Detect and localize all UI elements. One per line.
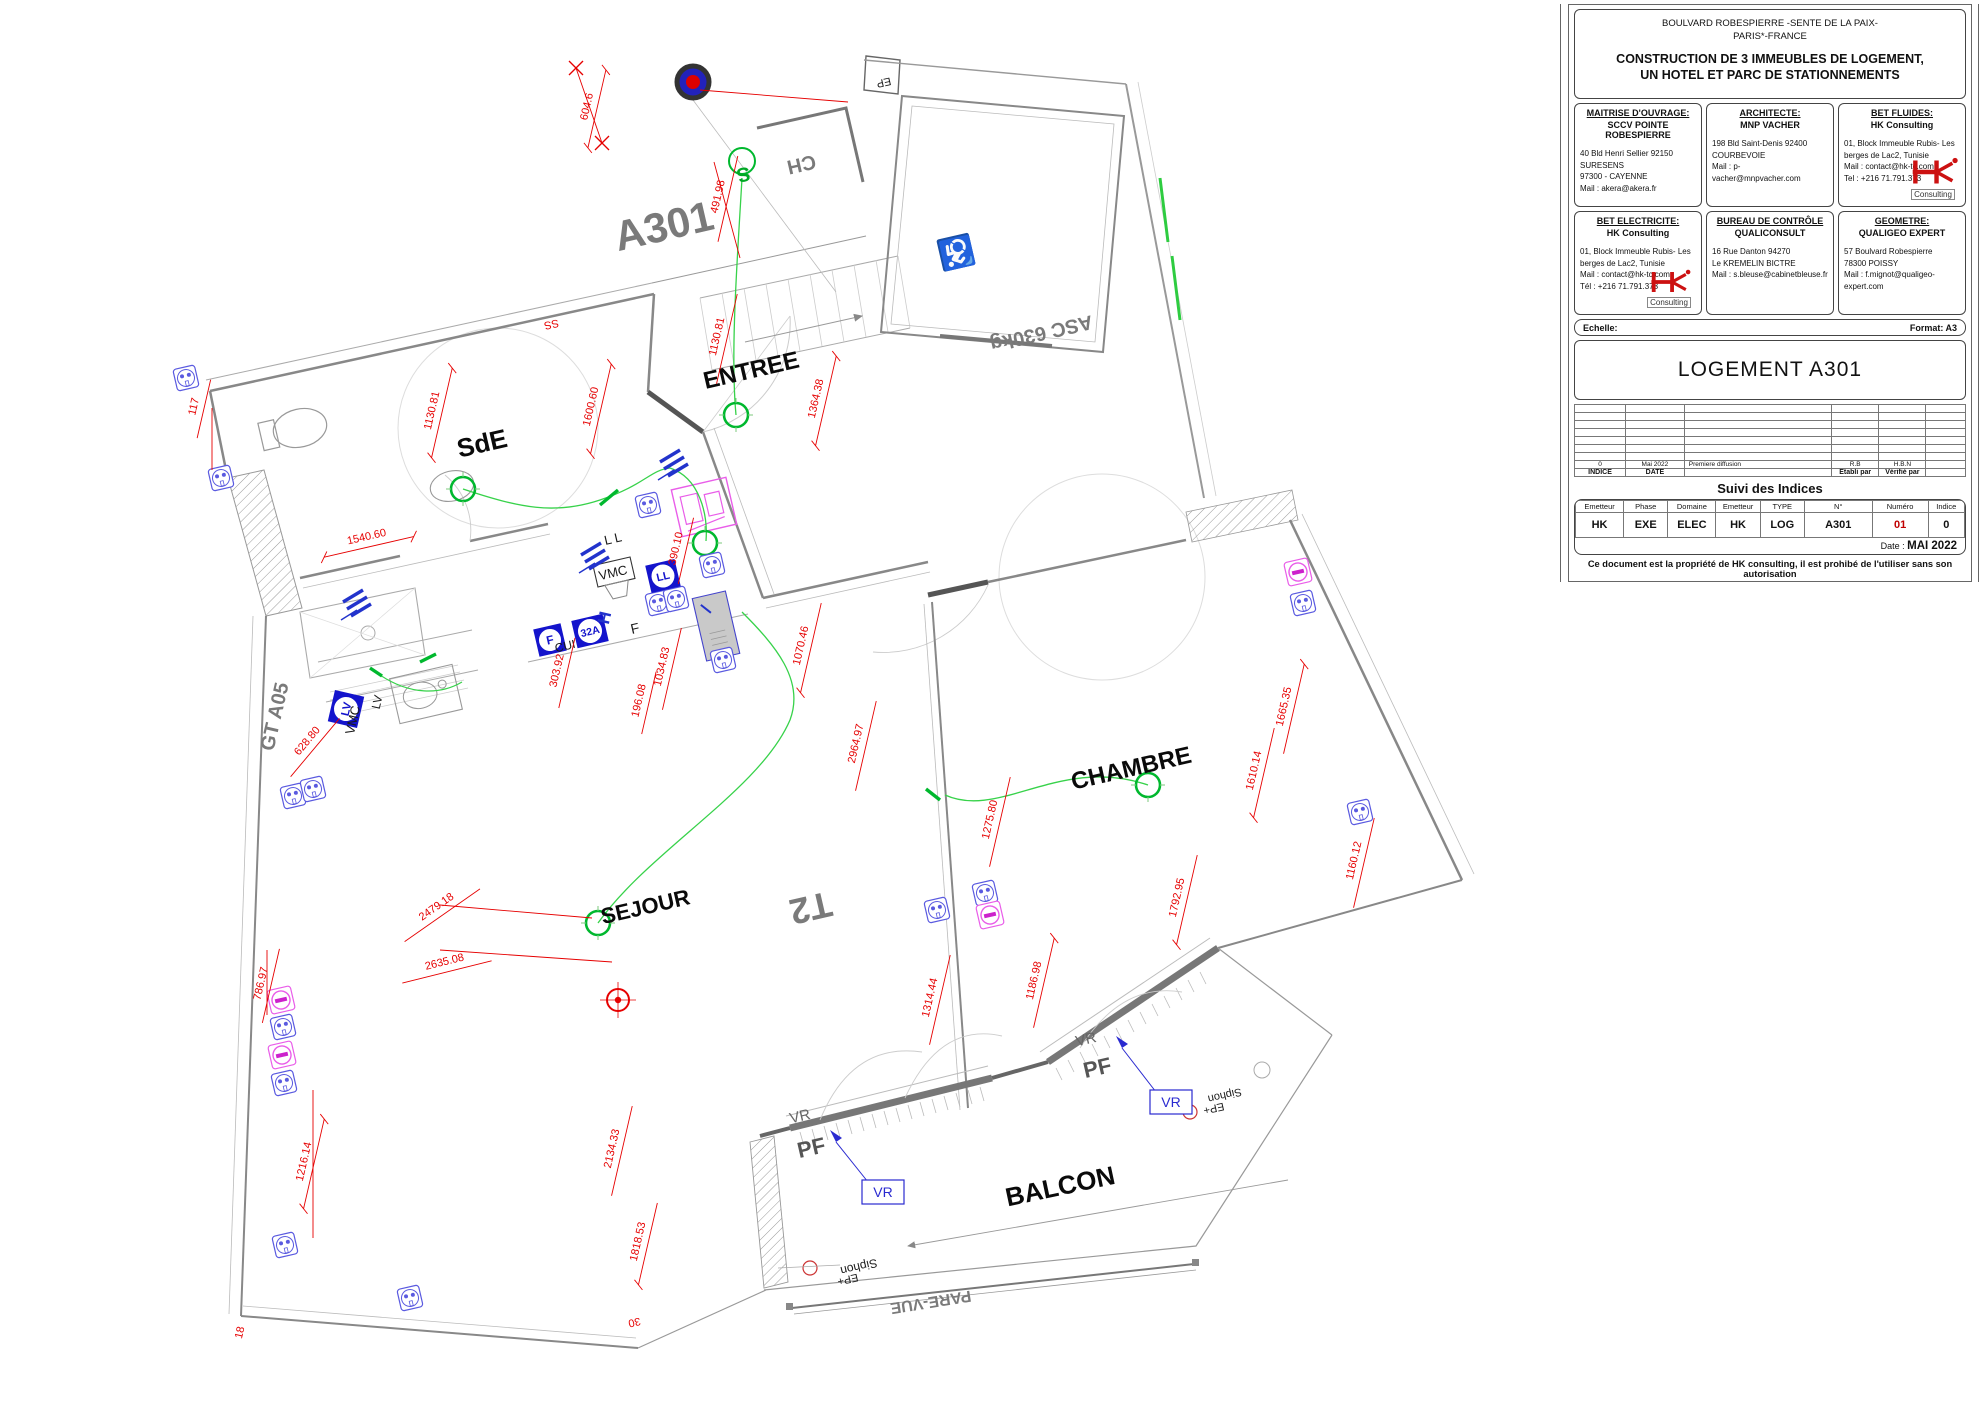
svg-text:491.98: 491.98 [709,179,728,214]
zone-label-t2: T2 [786,883,836,932]
label-siphon-2: Siphon [1207,1085,1243,1104]
revisions-table: 0 Mai 2022 Premiere diffusion R.B H.B.N … [1574,404,1966,477]
drawing-title: LOGEMENT A301 [1574,340,1966,400]
document-meta: Emetteur Phase Domaine Emetteur TYPE N° … [1574,499,1966,555]
svg-text:303.92: 303.92 [548,653,567,688]
svg-text:390.10: 390.10 [667,531,686,566]
label-ep-plus: EP+ [836,1271,859,1287]
stakeholder-bureau-controle: BUREAU DE CONTRÔLE QUALICONSULT 16 Rue D… [1706,211,1834,315]
label-pf: PF [795,1132,828,1163]
room-label-chambre: CHAMBRE [1069,742,1195,796]
project-address-2: PARIS*-FRANCE [1575,31,1965,44]
hk-consulting-logo: Consulting [1640,269,1698,308]
format-label: Format: A3 [1910,323,1957,333]
label-vr-gray-2: VR [1074,1029,1098,1050]
copyright-footer: Ce document est la propriété de HK consu… [1574,559,1966,579]
label-pf-2: PF [1081,1052,1114,1083]
hk-consulting-logo: Consulting [1904,157,1962,200]
stakeholder-bet-fluides: BET FLUIDES: HK Consulting 01, Block Imm… [1838,103,1966,207]
svg-text:VR: VR [1161,1094,1180,1110]
svg-text:117: 117 [186,397,202,417]
zone-label-asc: ASC 630kg [988,310,1095,355]
plan-texts: SdE ENTREE SEJOUR CHAMBRE BALCON A301 T2… [257,74,1243,1316]
svg-text:196.08: 196.08 [630,683,649,718]
project-title-1: CONSTRUCTION DE 3 IMMEUBLES DE LOGEMENT, [1575,51,1965,67]
smoke-detector [600,982,636,1018]
zone-label-ep: EP [875,74,892,89]
stakeholder-maitrise-ouvrage: MAITRISE D'OUVRAGE: SCCV POINTE ROBESPIE… [1574,103,1702,207]
fixtures: ♿ [257,66,1270,1275]
room-label-balcon: BALCON [1003,1160,1118,1212]
zone-label-a301: A301 [610,192,718,260]
label-ll: L L [603,529,624,548]
dimensions [212,61,848,1238]
label-f: F [629,619,641,637]
project-address-1: BOULVARD ROBESPIERRE -SENTE DE LA PAIX- [1575,18,1965,31]
stakeholder-bet-electricite: BET ELECTRICITE: HK Consulting 01, Block… [1574,211,1702,315]
project-header: BOULVARD ROBESPIERRE -SENTE DE LA PAIX- … [1574,9,1966,99]
sheet-border-line [1560,4,1561,582]
svg-text:2479.18: 2479.18 [417,891,456,924]
vr-callout: VR [830,1130,904,1204]
scale-bar: Echelle: Format: A3 [1574,319,1966,336]
siphon-drain [803,1261,817,1275]
label-lv: LV [369,694,386,711]
room-label-sde: SdE [454,423,510,464]
wheelchair-icon: ♿ [934,231,978,274]
balcony-post [1254,1062,1270,1078]
green-wiring [370,148,1180,940]
echelle-label: Echelle: [1583,323,1618,333]
label-ep-plus-2: EP+ [1202,1100,1225,1116]
stove [671,477,736,536]
svg-text:VR: VR [873,1184,892,1200]
svg-text:2635.08: 2635.08 [424,952,465,973]
suivi-title: Suivi des Indices [1574,477,1966,499]
svg-text:628.80: 628.80 [292,724,323,757]
survey-point [677,66,709,98]
stakeholder-geometre: GEOMETRE: QUALIGEO EXPERT 57 Boulvard Ro… [1838,211,1966,315]
vr-callout: VR [1116,1036,1192,1114]
zone-label-pare-vue: PARE-VUE [889,1287,972,1317]
svg-text:18: 18 [233,1325,247,1340]
stakeholder-architecte: ARCHITECTE: MNP VACHER 198 Bld Saint-Den… [1706,103,1834,207]
room-label-sejour: SEJOUR [598,884,692,929]
document-date: Date : MAI 2022 [1575,538,1965,554]
sheet-border-line [1978,4,1979,582]
svg-text:30: 30 [627,1315,642,1329]
toilet [257,403,331,455]
floor-plan-sheet: ♿ [0,0,1985,1403]
switch-symbol: S [734,162,752,186]
title-block: BOULVARD ROBESPIERRE -SENTE DE LA PAIX- … [1568,4,1972,582]
zone-label-ch: CH [785,150,818,178]
project-title-2: UN HOTEL ET PARC DE STATIONNEMENTS [1575,67,1965,83]
